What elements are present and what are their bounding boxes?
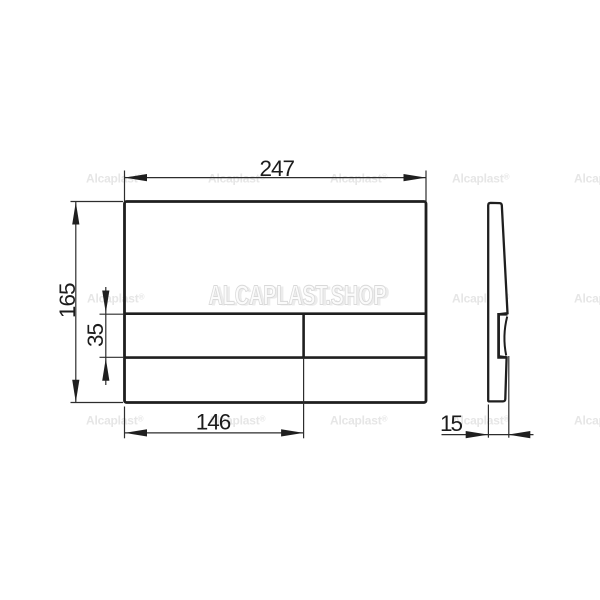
svg-text:Alcaplast®: Alcaplast® (87, 292, 145, 306)
svg-text:Alcaplast®: Alcaplast® (574, 172, 600, 186)
svg-text:Alcaplast®: Alcaplast® (574, 292, 600, 306)
svg-text:Alcaplast®: Alcaplast® (330, 172, 388, 186)
svg-text:Alcaplast®: Alcaplast® (86, 414, 144, 428)
svg-text:146: 146 (196, 410, 231, 435)
svg-text:165: 165 (55, 283, 80, 318)
svg-text:Alcaplast®: Alcaplast® (574, 414, 600, 428)
svg-text:Alcaplast®: Alcaplast® (452, 172, 510, 186)
svg-text:ALCAPLAST.SHOP: ALCAPLAST.SHOP (209, 280, 387, 311)
svg-text:Alcaplast®: Alcaplast® (208, 172, 266, 186)
svg-text:35: 35 (83, 324, 108, 348)
svg-text:Alcaplast®: Alcaplast® (330, 414, 388, 428)
svg-text:247: 247 (260, 156, 295, 181)
svg-text:15: 15 (440, 411, 463, 436)
